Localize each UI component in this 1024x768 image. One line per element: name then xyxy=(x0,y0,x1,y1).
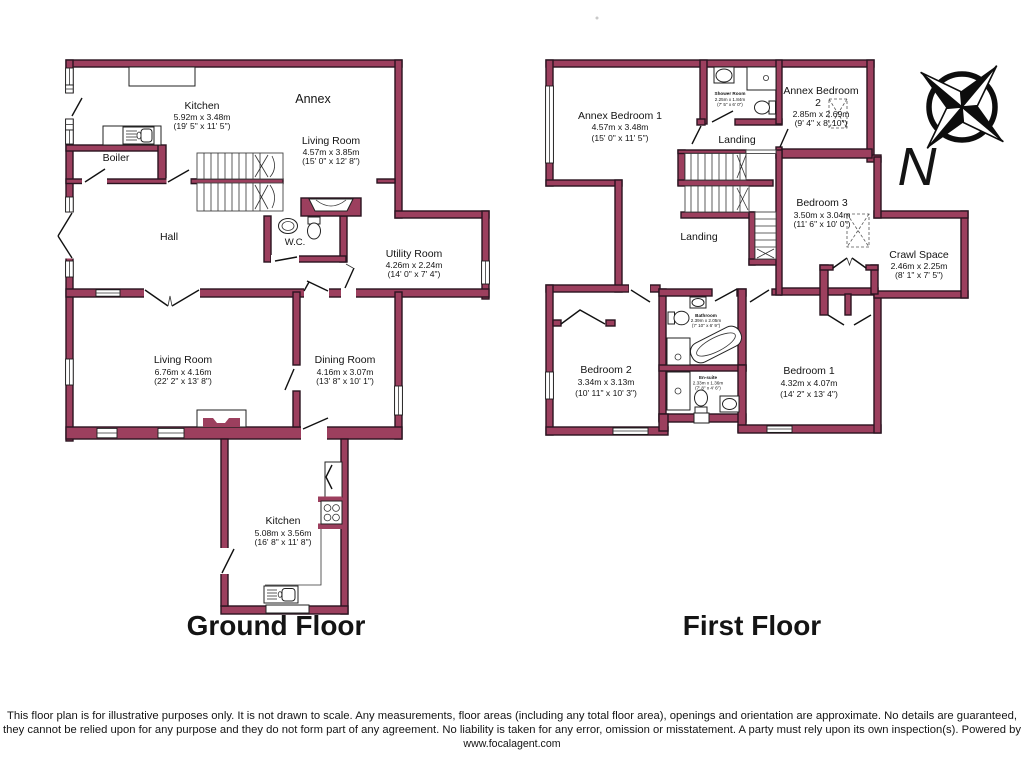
svg-text:3.34m x 3.13m: 3.34m x 3.13m xyxy=(578,377,635,387)
svg-text:This floor plan is for illustr: This floor plan is for illustrative purp… xyxy=(7,710,1017,722)
svg-text:(11' 6" x 10' 0"): (11' 6" x 10' 0") xyxy=(794,219,851,229)
svg-text:(7' 8" x 4' 6"): (7' 8" x 4' 6") xyxy=(695,386,721,391)
svg-text:Annex: Annex xyxy=(295,92,331,106)
svg-text:(19' 5" x 11' 5"): (19' 5" x 11' 5") xyxy=(174,121,231,131)
svg-text:En-suite: En-suite xyxy=(699,375,718,380)
svg-text:Bedroom 1: Bedroom 1 xyxy=(783,365,835,377)
svg-text:Living Room: Living Room xyxy=(302,135,361,147)
svg-text:(16' 8" x 11' 8"): (16' 8" x 11' 8") xyxy=(255,537,312,547)
svg-text:Utility Room: Utility Room xyxy=(386,248,443,260)
svg-text:Ground Floor: Ground Floor xyxy=(187,610,366,641)
svg-text:(13' 8" x 10' 1"): (13' 8" x 10' 1") xyxy=(316,376,374,386)
svg-text:Crawl Space: Crawl Space xyxy=(889,249,949,261)
svg-text:Landing: Landing xyxy=(718,134,756,146)
svg-text:Kitchen: Kitchen xyxy=(265,515,300,527)
svg-text:(15' 0" x 12' 8"): (15' 0" x 12' 8") xyxy=(302,156,360,166)
svg-text:Kitchen: Kitchen xyxy=(184,100,219,112)
svg-text:Bedroom 2: Bedroom 2 xyxy=(580,364,632,376)
svg-text:(7' 5" x 6' 0"): (7' 5" x 6' 0") xyxy=(717,102,743,107)
svg-text:www.focalagent.com: www.focalagent.com xyxy=(462,738,560,750)
svg-text:they cannot be relied upon for: they cannot be relied upon for any purpo… xyxy=(3,724,1022,736)
svg-text:(22' 2" x 13' 8"): (22' 2" x 13' 8") xyxy=(154,376,212,386)
svg-text:Boiler: Boiler xyxy=(103,152,130,164)
svg-text:2: 2 xyxy=(815,97,821,109)
svg-text:Dining Room: Dining Room xyxy=(315,354,376,366)
svg-text:Shower Room: Shower Room xyxy=(715,91,746,96)
svg-text:(9' 4" x 8' 10"): (9' 4" x 8' 10") xyxy=(795,118,848,128)
svg-text:(7' 10" x 6' 9"): (7' 10" x 6' 9") xyxy=(692,323,721,328)
svg-text:W.C.: W.C. xyxy=(285,237,306,248)
svg-text:4.57m x 3.48m: 4.57m x 3.48m xyxy=(592,122,649,132)
svg-text:4.32m x 4.07m: 4.32m x 4.07m xyxy=(781,378,838,388)
svg-text:(15' 0" x 11' 5"): (15' 0" x 11' 5") xyxy=(592,133,649,143)
svg-text:Bedroom 3: Bedroom 3 xyxy=(796,197,848,209)
svg-text:N: N xyxy=(898,137,938,197)
svg-text:Landing: Landing xyxy=(680,231,718,243)
svg-text:(14' 0" x 7' 4"): (14' 0" x 7' 4") xyxy=(388,269,441,279)
svg-text:(8' 1" x 7' 5"): (8' 1" x 7' 5") xyxy=(895,270,943,280)
svg-text:Annex Bedroom 1: Annex Bedroom 1 xyxy=(578,110,662,122)
svg-text:Annex Bedroom: Annex Bedroom xyxy=(783,85,859,97)
svg-text:(10' 11" x 10' 3"): (10' 11" x 10' 3") xyxy=(575,388,637,398)
svg-text:(14' 2" x 13' 4"): (14' 2" x 13' 4") xyxy=(780,389,838,399)
svg-text:Hall: Hall xyxy=(160,231,178,243)
svg-text:First Floor: First Floor xyxy=(683,610,822,641)
svg-text:Living Room: Living Room xyxy=(154,354,213,366)
